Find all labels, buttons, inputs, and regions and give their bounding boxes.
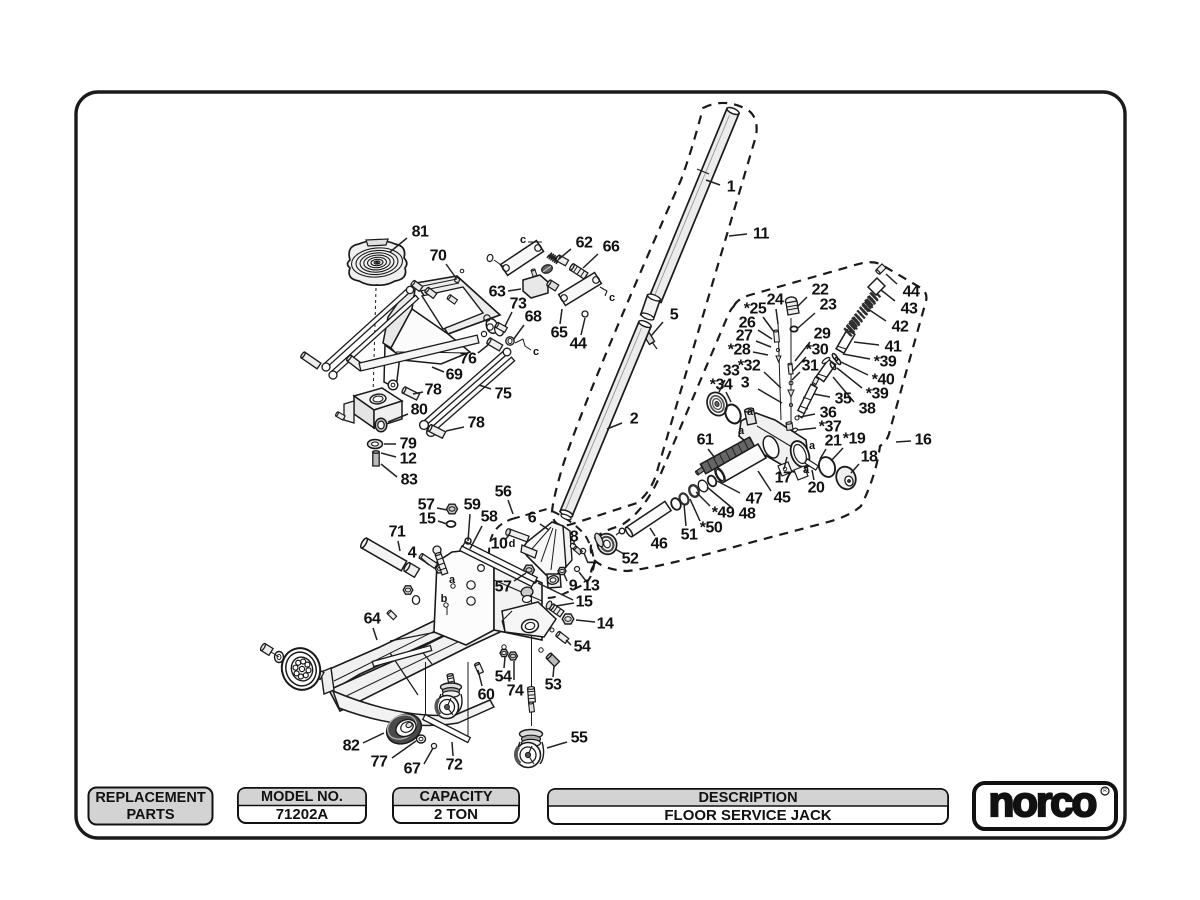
svg-text:78: 78 bbox=[468, 415, 485, 432]
svg-text:*32: *32 bbox=[738, 358, 761, 375]
svg-text:60: 60 bbox=[478, 687, 495, 704]
svg-text:FLOOR SERVICE JACK: FLOOR SERVICE JACK bbox=[664, 807, 831, 824]
svg-text:45: 45 bbox=[774, 490, 791, 507]
svg-text:55: 55 bbox=[571, 730, 588, 747]
svg-text:70: 70 bbox=[430, 248, 447, 265]
svg-text:56: 56 bbox=[495, 484, 512, 501]
svg-text:a: a bbox=[809, 440, 816, 452]
svg-text:42: 42 bbox=[892, 319, 909, 336]
svg-text:62: 62 bbox=[576, 235, 593, 252]
svg-text:24: 24 bbox=[767, 292, 784, 309]
svg-text:81: 81 bbox=[412, 224, 429, 241]
svg-text:14: 14 bbox=[597, 616, 614, 633]
svg-text:15: 15 bbox=[419, 511, 436, 528]
svg-text:78: 78 bbox=[425, 382, 442, 399]
svg-text:20: 20 bbox=[808, 480, 825, 497]
svg-text:65: 65 bbox=[551, 325, 568, 342]
svg-text:66: 66 bbox=[603, 239, 620, 256]
svg-text:R: R bbox=[1103, 788, 1107, 794]
svg-text:75: 75 bbox=[495, 386, 512, 403]
svg-text:76: 76 bbox=[460, 351, 477, 368]
svg-text:72: 72 bbox=[446, 757, 463, 774]
svg-text:74: 74 bbox=[507, 683, 524, 700]
svg-text:23: 23 bbox=[820, 297, 837, 314]
svg-text:59: 59 bbox=[464, 497, 481, 514]
svg-text:*19: *19 bbox=[843, 431, 866, 448]
svg-text:17: 17 bbox=[775, 470, 792, 487]
svg-text:15: 15 bbox=[576, 594, 593, 611]
svg-text:3: 3 bbox=[741, 375, 750, 392]
svg-text:9: 9 bbox=[569, 578, 578, 595]
svg-text:b: b bbox=[441, 593, 448, 605]
svg-text:DESCRIPTION: DESCRIPTION bbox=[698, 790, 797, 806]
svg-text:*34: *34 bbox=[710, 377, 733, 394]
svg-text:80: 80 bbox=[411, 402, 428, 419]
svg-text:46: 46 bbox=[651, 536, 668, 553]
svg-text:MODEL NO.: MODEL NO. bbox=[261, 789, 343, 805]
svg-text:c: c bbox=[520, 234, 526, 246]
svg-text:18: 18 bbox=[861, 449, 878, 466]
svg-text:*28: *28 bbox=[728, 342, 751, 359]
svg-text:52: 52 bbox=[622, 551, 639, 568]
svg-text:2: 2 bbox=[630, 411, 639, 428]
svg-text:7: 7 bbox=[588, 560, 597, 577]
svg-text:a: a bbox=[449, 574, 456, 586]
svg-text:d: d bbox=[509, 538, 516, 550]
svg-text:67: 67 bbox=[404, 761, 421, 778]
svg-text:6: 6 bbox=[528, 510, 537, 527]
svg-text:2 TON: 2 TON bbox=[434, 806, 478, 823]
svg-text:61: 61 bbox=[697, 432, 714, 449]
svg-text:21: 21 bbox=[825, 433, 842, 450]
svg-text:43: 43 bbox=[901, 301, 918, 318]
svg-text:REPLACEMENT: REPLACEMENT bbox=[95, 790, 206, 806]
svg-text:69: 69 bbox=[446, 367, 463, 384]
svg-text:*39: *39 bbox=[866, 386, 889, 403]
svg-text:10: 10 bbox=[491, 536, 508, 553]
svg-text:16: 16 bbox=[915, 432, 932, 449]
svg-text:64: 64 bbox=[364, 611, 381, 628]
svg-text:35: 35 bbox=[835, 391, 852, 408]
svg-text:71: 71 bbox=[389, 524, 406, 541]
svg-text:1: 1 bbox=[727, 179, 736, 196]
svg-text:38: 38 bbox=[859, 401, 876, 418]
svg-text:29: 29 bbox=[814, 326, 831, 343]
svg-text:CAPACITY: CAPACITY bbox=[419, 789, 492, 805]
svg-text:c: c bbox=[609, 292, 615, 304]
svg-text:44: 44 bbox=[903, 284, 920, 301]
svg-text:83: 83 bbox=[401, 472, 418, 489]
svg-text:PARTS: PARTS bbox=[126, 807, 174, 823]
svg-text:48: 48 bbox=[739, 506, 756, 523]
svg-text:57: 57 bbox=[495, 579, 512, 596]
svg-text:82: 82 bbox=[343, 738, 360, 755]
svg-text:63: 63 bbox=[489, 284, 506, 301]
svg-text:44: 44 bbox=[570, 336, 587, 353]
svg-text:*30: *30 bbox=[806, 342, 829, 359]
svg-text:5: 5 bbox=[670, 307, 679, 324]
svg-text:12: 12 bbox=[400, 451, 417, 468]
svg-text:77: 77 bbox=[371, 754, 388, 771]
svg-text:11: 11 bbox=[753, 226, 770, 243]
svg-text:41: 41 bbox=[885, 339, 902, 356]
svg-text:*50: *50 bbox=[700, 520, 723, 537]
svg-text:68: 68 bbox=[525, 309, 542, 326]
svg-text:*39: *39 bbox=[874, 354, 897, 371]
svg-text:13: 13 bbox=[583, 578, 600, 595]
svg-text:a: a bbox=[738, 425, 745, 437]
svg-text:norco: norco bbox=[989, 778, 1097, 825]
svg-text:58: 58 bbox=[481, 509, 498, 526]
svg-text:71202A: 71202A bbox=[276, 806, 329, 823]
svg-text:a: a bbox=[747, 406, 754, 418]
svg-text:31: 31 bbox=[802, 358, 819, 375]
svg-text:54: 54 bbox=[574, 639, 591, 656]
svg-text:c: c bbox=[533, 346, 539, 358]
svg-text:8: 8 bbox=[570, 529, 579, 546]
svg-text:4: 4 bbox=[408, 545, 417, 562]
svg-text:53: 53 bbox=[545, 677, 562, 694]
svg-text:51: 51 bbox=[681, 527, 698, 544]
